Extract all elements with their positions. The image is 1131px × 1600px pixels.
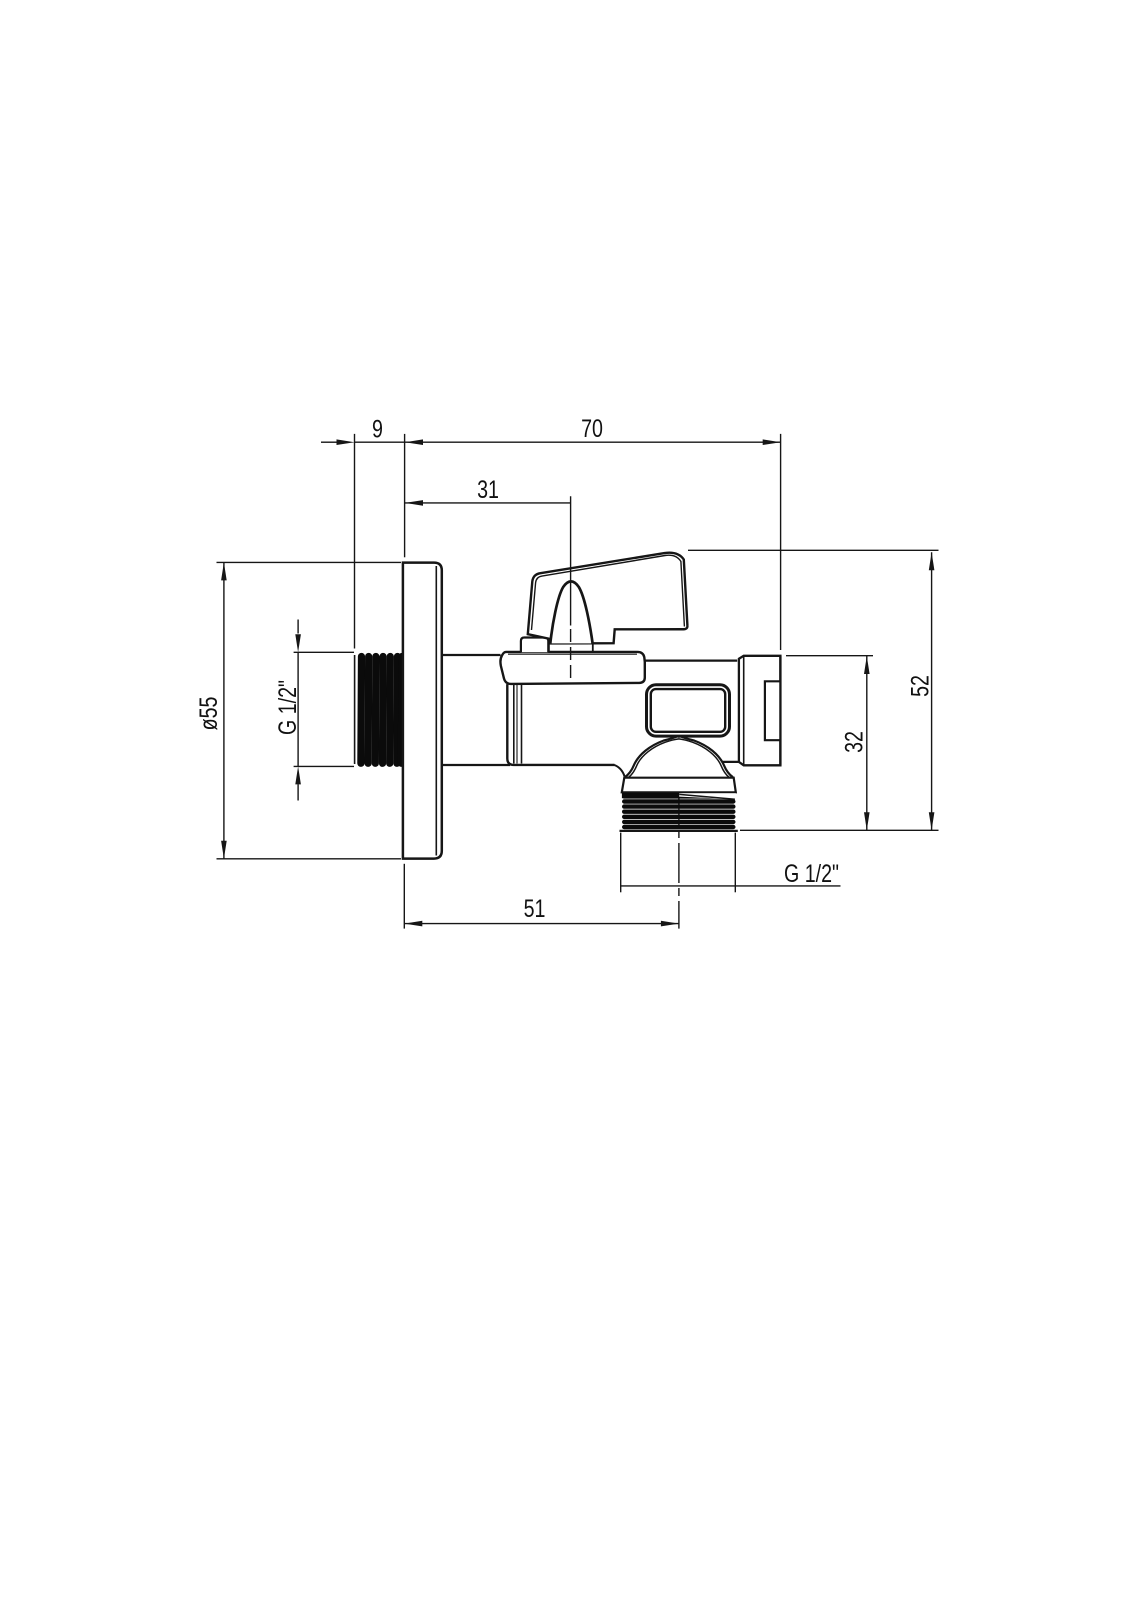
svg-text:G 1/2": G 1/2" <box>274 680 302 735</box>
svg-text:9: 9 <box>372 415 383 443</box>
svg-text:70: 70 <box>581 415 603 443</box>
svg-text:ø55: ø55 <box>195 697 223 731</box>
svg-text:G 1/2": G 1/2" <box>784 859 839 887</box>
svg-text:31: 31 <box>477 475 499 503</box>
svg-text:52: 52 <box>906 675 934 697</box>
svg-text:51: 51 <box>524 895 546 923</box>
svg-text:32: 32 <box>840 731 868 753</box>
